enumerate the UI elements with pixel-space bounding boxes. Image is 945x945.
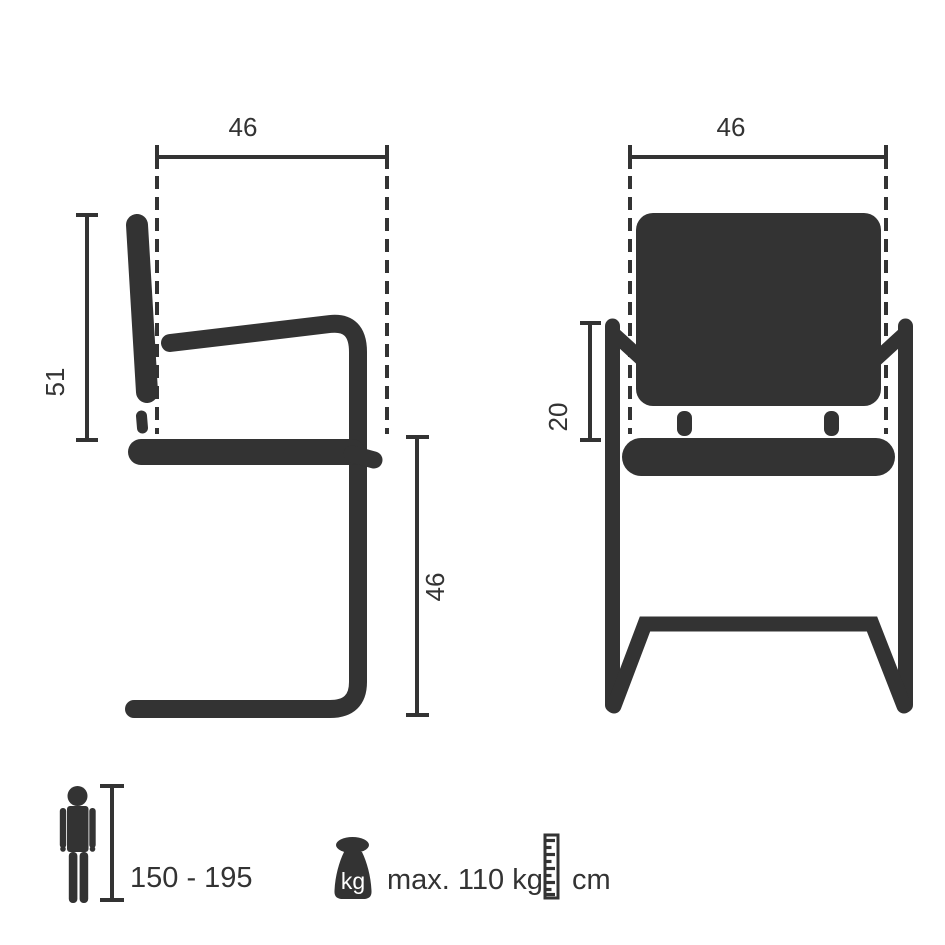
ruler-icon	[545, 835, 558, 898]
side-frame-tube	[134, 324, 358, 709]
front-width-dimension	[630, 145, 886, 169]
person-hand-left	[60, 846, 66, 852]
side-seat-depth-label: 46	[203, 112, 283, 142]
person-icon	[60, 786, 96, 903]
side-view	[76, 145, 429, 715]
person-torso	[67, 806, 89, 852]
front-backrest	[636, 213, 881, 406]
front-view	[580, 145, 906, 706]
side-seat-height-label: 46	[420, 547, 450, 627]
person-hand-right	[90, 846, 96, 852]
side-backrest-connector	[142, 416, 143, 428]
front-backrest-connector-right	[824, 411, 839, 436]
side-seat-tip	[352, 454, 374, 460]
max-weight-label: max. 110 kg	[387, 865, 543, 895]
weight-knob	[336, 837, 369, 853]
diagram-drawing	[0, 0, 945, 945]
ruler-unit-label: cm	[572, 865, 611, 895]
front-width-label: 46	[691, 112, 771, 142]
person-arm-left	[60, 808, 66, 848]
side-backrest	[137, 225, 147, 392]
side-back-height-dimension	[76, 215, 98, 440]
front-base-crossbar	[614, 624, 904, 706]
person-arm-right	[89, 808, 95, 848]
front-seat	[622, 438, 895, 476]
front-armrest-height-label: 20	[543, 377, 573, 457]
chair-dimension-diagram: 46 51 46 46 20 150 - 195 kg max. 110 kg …	[0, 0, 945, 945]
side-back-height-label: 51	[40, 342, 70, 422]
weight-unit-label: kg	[331, 869, 375, 893]
person-height-range-label: 150 - 195	[130, 863, 253, 893]
side-depth-dimension	[157, 145, 387, 169]
person-height-dimension	[100, 786, 124, 900]
person-leg-right	[80, 852, 89, 903]
front-armrest-height-dimension	[580, 323, 601, 440]
person-head	[68, 786, 88, 806]
front-backrest-connector-left	[677, 411, 692, 436]
person-leg-left	[69, 852, 78, 903]
